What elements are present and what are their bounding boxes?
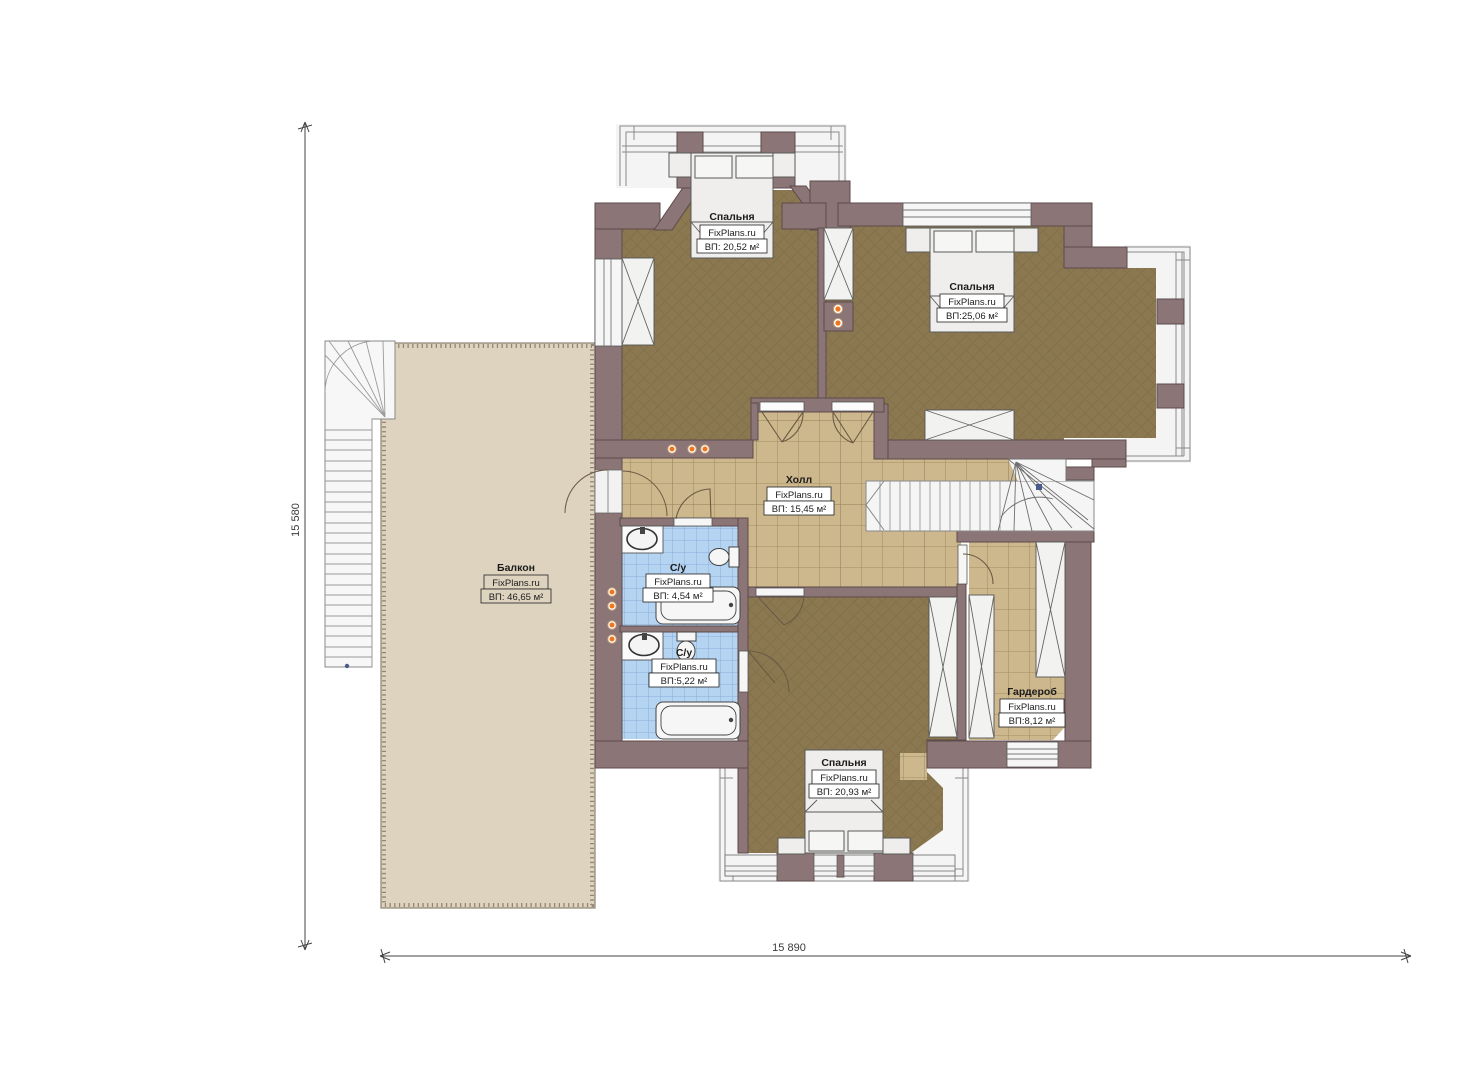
svg-text:Спальня: Спальня [949, 281, 994, 293]
svg-text:ВП: 15,45 м²: ВП: 15,45 м² [772, 504, 827, 515]
svg-text:FixPlans.ru: FixPlans.ru [948, 297, 996, 308]
svg-text:ВП: 20,52 м²: ВП: 20,52 м² [705, 242, 760, 253]
svg-text:ВП: 46,65 м²: ВП: 46,65 м² [489, 592, 544, 603]
svg-text:Холл: Холл [786, 474, 812, 486]
svg-text:ВП:25,06 м²: ВП:25,06 м² [946, 311, 998, 322]
svg-text:15 890: 15 890 [772, 942, 806, 954]
svg-text:Спальня: Спальня [821, 757, 866, 769]
svg-text:С/у: С/у [676, 647, 693, 659]
svg-text:FixPlans.ru: FixPlans.ru [820, 773, 868, 784]
svg-text:ВП:8,12 м²: ВП:8,12 м² [1009, 716, 1056, 727]
svg-text:15 580: 15 580 [290, 503, 302, 537]
svg-text:FixPlans.ru: FixPlans.ru [654, 577, 702, 588]
svg-text:Балкон: Балкон [497, 562, 535, 574]
svg-text:ВП: 4,54 м²: ВП: 4,54 м² [653, 591, 702, 602]
svg-text:С/у: С/у [670, 562, 687, 574]
svg-text:FixPlans.ru: FixPlans.ru [1008, 702, 1056, 713]
svg-text:Спальня: Спальня [709, 211, 754, 223]
svg-text:FixPlans.ru: FixPlans.ru [492, 578, 540, 589]
svg-text:FixPlans.ru: FixPlans.ru [708, 228, 756, 239]
svg-text:ВП:5,22 м²: ВП:5,22 м² [661, 676, 708, 687]
svg-text:ВП: 20,93 м²: ВП: 20,93 м² [817, 787, 872, 798]
svg-text:FixPlans.ru: FixPlans.ru [660, 662, 708, 673]
svg-text:Гардероб: Гардероб [1007, 686, 1057, 698]
svg-text:FixPlans.ru: FixPlans.ru [775, 490, 823, 501]
